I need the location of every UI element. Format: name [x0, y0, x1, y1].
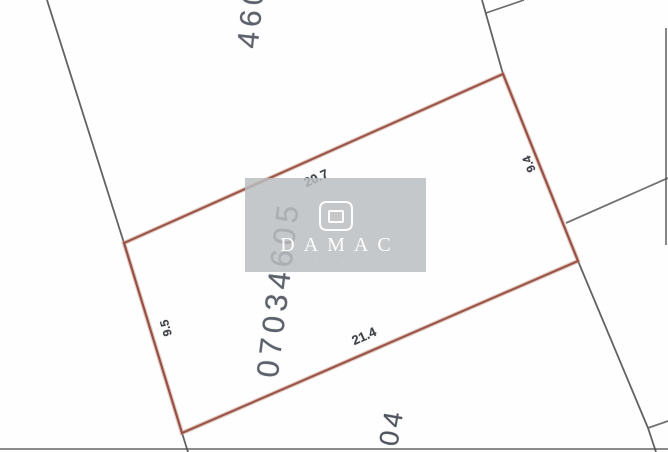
damac-brand-subtext: · · · · · · · — [306, 260, 365, 266]
neighbor-plot-number-bottom: 04 — [375, 406, 408, 448]
cadastral-plot-map: 07034605 460 04 20.7 21.4 9.5 9.4 DAMAC … — [0, 0, 668, 452]
boundary-line-right — [482, 0, 656, 452]
boundary-branch-mid-right — [566, 178, 668, 223]
damac-watermark: DAMAC · · · · · · · — [245, 178, 426, 272]
boundary-branch-top-right — [486, 0, 524, 13]
damac-brand-text: DAMAC — [280, 234, 399, 257]
boundary-branch-bottom-right — [648, 421, 668, 428]
damac-logo-icon-inner — [328, 210, 344, 223]
neighbor-plot-number-top: 460 — [234, 0, 271, 50]
dimension-label-left: 9.5 — [158, 318, 174, 337]
damac-logo-icon — [319, 201, 353, 231]
